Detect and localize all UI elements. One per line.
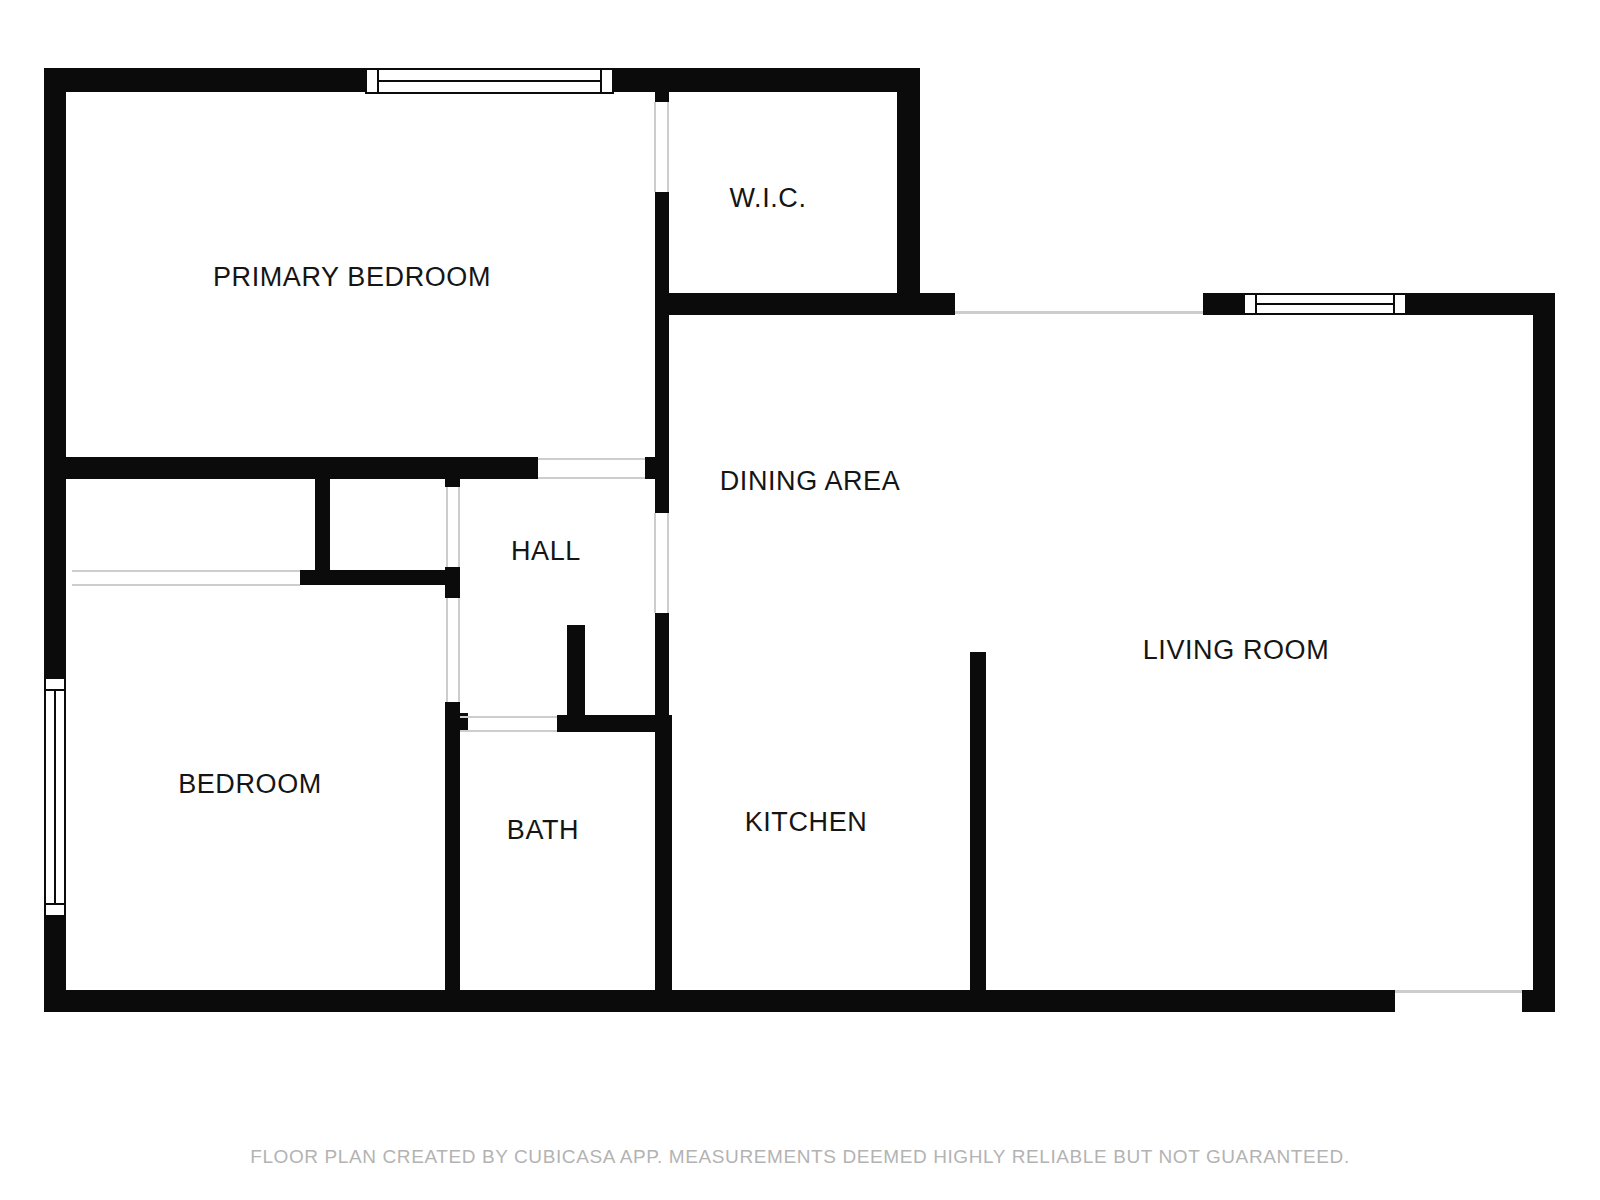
room-label-dining-area: DINING AREA bbox=[720, 466, 901, 497]
primary-bedroom-bottom-wall bbox=[44, 457, 538, 479]
living-room-window bbox=[1243, 293, 1407, 315]
bedroom-window-pane-line bbox=[46, 689, 64, 691]
bath-top-wall bbox=[557, 715, 672, 732]
room-label-primary-bedroom: PRIMARY BEDROOM bbox=[213, 262, 491, 293]
top-wall-left-segment bbox=[44, 68, 365, 92]
primary-bedroom-window-pane-line bbox=[600, 70, 602, 92]
footer-disclaimer: FLOOR PLAN CREATED BY CUBICASA APP. MEAS… bbox=[250, 1146, 1350, 1168]
hall-wall-between-doors bbox=[445, 567, 460, 598]
wic-door-line-a bbox=[654, 102, 656, 192]
closet-divider-wall bbox=[315, 479, 330, 570]
room-label-living-room: LIVING ROOM bbox=[1143, 635, 1330, 666]
patio-opening-line bbox=[1395, 990, 1522, 993]
bedroom-bath-wall bbox=[445, 702, 460, 990]
bottom-exterior-wall bbox=[44, 990, 1395, 1012]
top-wall-right-segment bbox=[614, 68, 917, 92]
hall-closet-door-line-b bbox=[458, 487, 460, 567]
hall-dining-door-line-a bbox=[654, 513, 656, 613]
wic-door-line-b bbox=[667, 102, 669, 192]
wic-left-wall-lower bbox=[655, 192, 669, 293]
left-exterior-wall-upper bbox=[44, 68, 66, 677]
living-top-wall-left bbox=[1203, 293, 1243, 315]
entry-opening-line bbox=[955, 311, 1203, 314]
room-label-kitchen: KITCHEN bbox=[745, 807, 868, 838]
bedroom-window bbox=[44, 677, 66, 917]
living-room-window-pane-line bbox=[1255, 295, 1257, 313]
closet-sliding-door-line-a bbox=[72, 570, 300, 572]
bath-door-line-a bbox=[460, 716, 557, 718]
wic-right-wall bbox=[897, 68, 920, 315]
wic-bottom-wall bbox=[655, 293, 955, 315]
bottom-right-corner-wall bbox=[1522, 990, 1555, 1012]
room-label-bedroom: BEDROOM bbox=[178, 769, 322, 800]
hall-closet-door-stub bbox=[445, 479, 460, 487]
hall-dining-door-line-b bbox=[667, 513, 669, 613]
hall-dining-wall-upper bbox=[655, 479, 669, 513]
bedroom-door-line-b bbox=[458, 598, 460, 702]
closet-bottom-wall bbox=[300, 570, 457, 585]
left-exterior-wall-lower bbox=[44, 917, 66, 1012]
bath-right-wall bbox=[655, 715, 672, 990]
room-label-bath: BATH bbox=[507, 815, 579, 846]
closet-sliding-door-line-b bbox=[72, 584, 300, 586]
bath-door-line-b bbox=[460, 730, 557, 732]
primary-bedroom-door-line-b bbox=[538, 477, 645, 479]
bedroom-window-pane-line bbox=[54, 689, 56, 905]
living-room-window-pane-line bbox=[1255, 303, 1395, 305]
bedroom-window-pane-line bbox=[46, 903, 64, 905]
hall-dining-wall-lower bbox=[655, 613, 669, 715]
primary-bedroom-window bbox=[365, 68, 614, 94]
living-room-window-pane-line bbox=[1393, 295, 1395, 313]
bedroom-dining-divider bbox=[655, 315, 669, 457]
hall-alcove-stub-wall bbox=[567, 625, 585, 715]
primary-bedroom-door-line-a bbox=[538, 458, 645, 460]
kitchen-living-divider bbox=[970, 652, 986, 990]
primary-bedroom-window-pane-line bbox=[377, 80, 602, 82]
primary-bedroom-window-pane-line bbox=[377, 70, 379, 92]
primary-bedroom-bottom-corner bbox=[645, 457, 669, 479]
room-label-hall: HALL bbox=[511, 536, 581, 567]
floor-plan: PRIMARY BEDROOMW.I.C.DINING AREAHALLLIVI… bbox=[0, 0, 1600, 1200]
room-label-w-i-c: W.I.C. bbox=[729, 183, 806, 214]
wic-left-wall-stub bbox=[655, 92, 669, 102]
hall-closet-door-line-a bbox=[446, 487, 448, 567]
bedroom-door-line-a bbox=[446, 598, 448, 702]
right-exterior-wall bbox=[1533, 293, 1555, 1012]
